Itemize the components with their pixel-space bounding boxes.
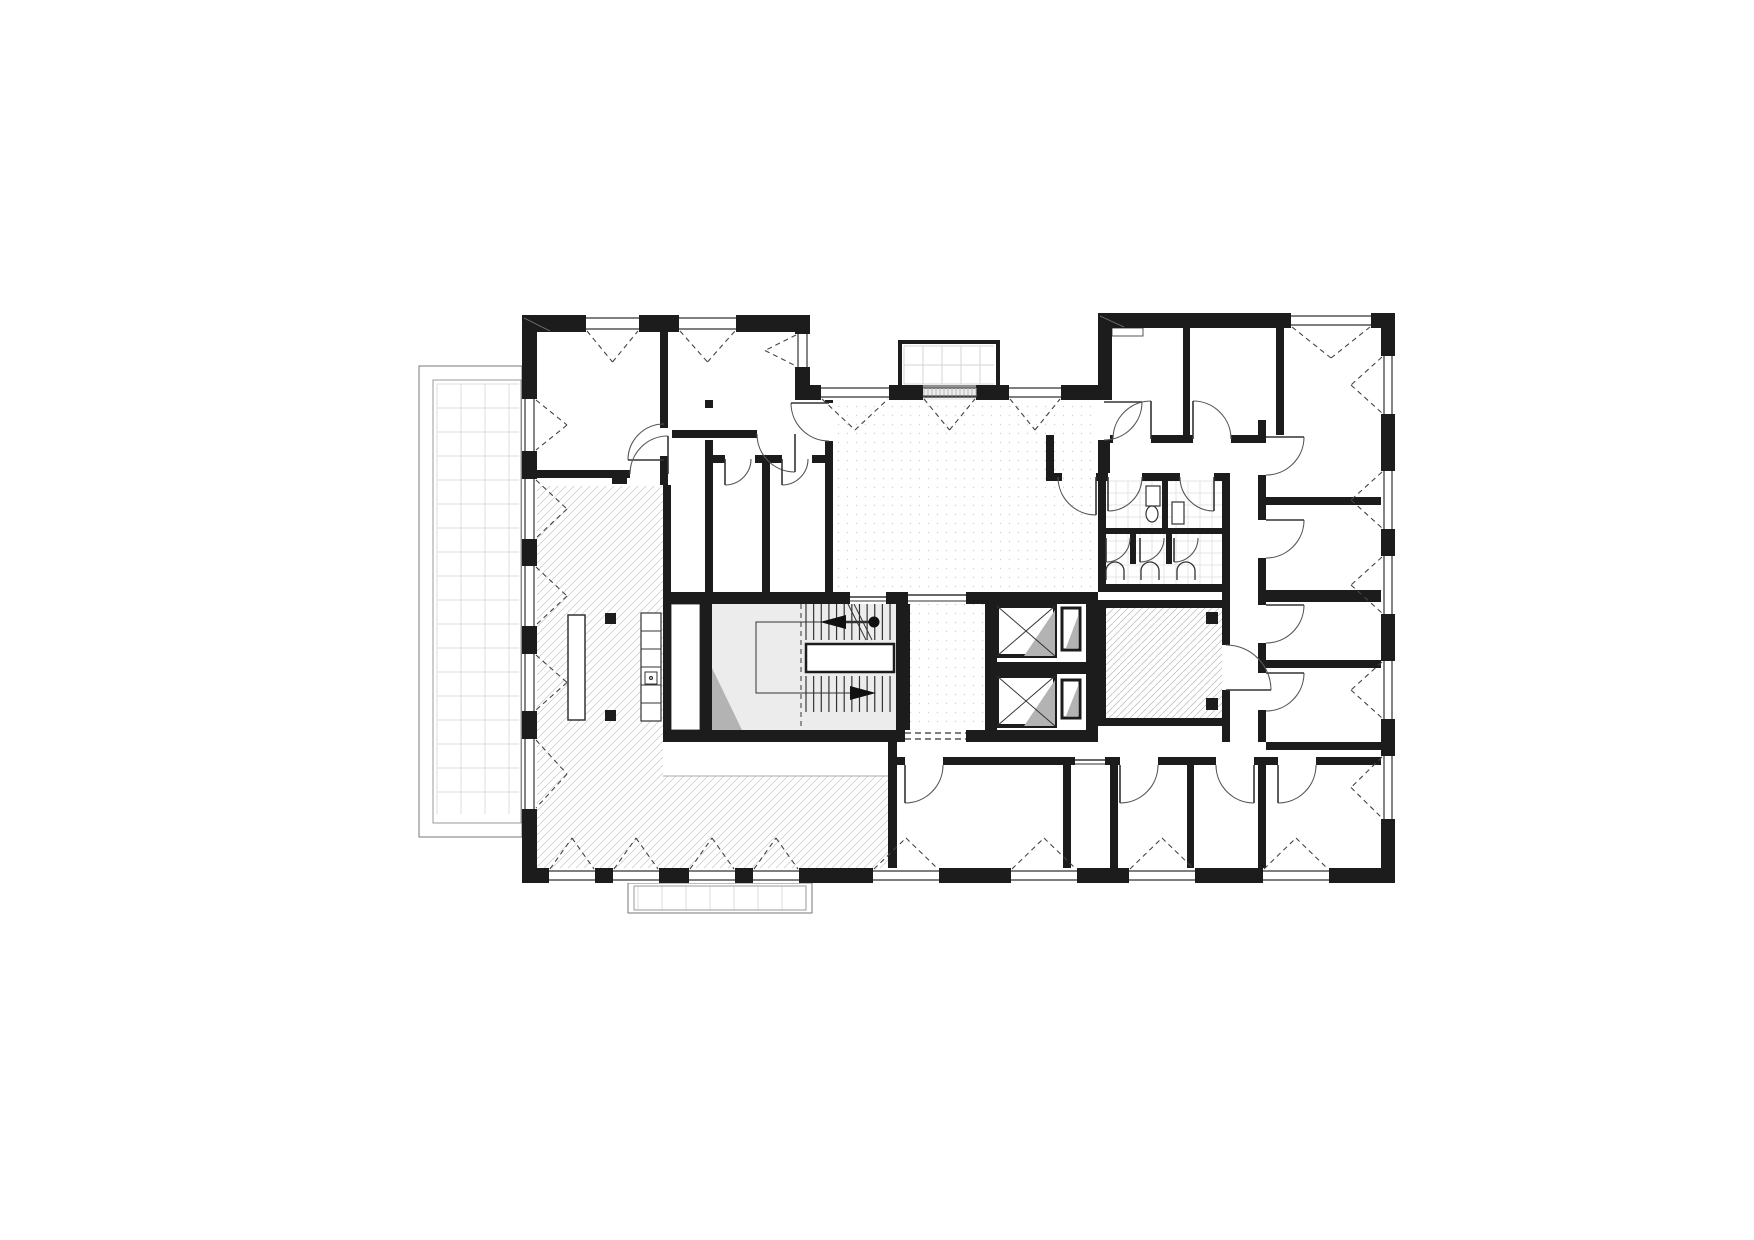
door-swing xyxy=(1104,402,1142,440)
window xyxy=(765,333,810,368)
door-swing xyxy=(1180,477,1214,511)
window-opening-chevron xyxy=(1351,757,1382,818)
stair-landing xyxy=(806,644,894,672)
window-opening-chevron xyxy=(765,335,796,366)
door-swing xyxy=(1108,477,1142,511)
floor-plan-drawing xyxy=(0,0,1754,1240)
window-opening-chevron xyxy=(536,400,567,450)
door-swing xyxy=(791,403,829,441)
elevator-lobby-floor xyxy=(910,604,985,730)
door-swing xyxy=(1106,538,1130,562)
window xyxy=(1351,555,1395,615)
washbasin-2 xyxy=(1172,502,1184,524)
door-swing xyxy=(1120,765,1158,803)
window-opening-chevron xyxy=(680,331,735,362)
terrace-outer xyxy=(419,366,522,837)
window xyxy=(1262,838,1330,883)
balcony-bottom-outer xyxy=(628,883,812,913)
door-swing xyxy=(1113,401,1151,439)
window-niche xyxy=(1112,328,1143,336)
terrace-tiles xyxy=(437,384,519,814)
door-swing xyxy=(1174,538,1198,562)
door-swing xyxy=(628,424,664,460)
window-opening-chevron xyxy=(1351,357,1382,413)
duct-shaft xyxy=(671,604,700,730)
kitchen-counter xyxy=(568,615,585,720)
window xyxy=(1290,313,1372,358)
window xyxy=(522,398,567,452)
hall-floor xyxy=(833,400,1098,592)
plan-layers xyxy=(419,313,1395,913)
window xyxy=(678,315,737,362)
balcony-bottom-inner xyxy=(634,886,806,910)
door-swing xyxy=(1278,765,1316,803)
window-opening-chevron xyxy=(1351,557,1382,613)
terrace-inner xyxy=(433,380,521,823)
window xyxy=(585,315,640,362)
page-canvas xyxy=(0,0,1754,1240)
door-swing xyxy=(1266,605,1304,643)
window xyxy=(1351,355,1395,415)
door-swing xyxy=(1266,520,1304,558)
window xyxy=(1128,838,1196,883)
balcony-top-tiles xyxy=(904,346,994,384)
window-opening-chevron xyxy=(1130,838,1194,869)
door-swing xyxy=(1216,765,1254,803)
window-opening-chevron xyxy=(587,331,638,362)
door-swing xyxy=(1193,401,1231,439)
window xyxy=(1351,660,1395,720)
great-room-lower xyxy=(537,776,888,868)
washbasin-1 xyxy=(1146,486,1160,506)
door-swing xyxy=(1266,673,1304,711)
window-opening-chevron xyxy=(1351,662,1382,718)
balcony-bottom-tiles xyxy=(638,886,802,910)
window-opening-chevron xyxy=(1264,838,1328,869)
store-room-hatch xyxy=(1106,608,1222,718)
door-swing xyxy=(725,459,751,485)
window-opening-chevron xyxy=(1292,327,1370,358)
door-swing xyxy=(905,765,943,803)
door-swing xyxy=(1266,437,1304,475)
